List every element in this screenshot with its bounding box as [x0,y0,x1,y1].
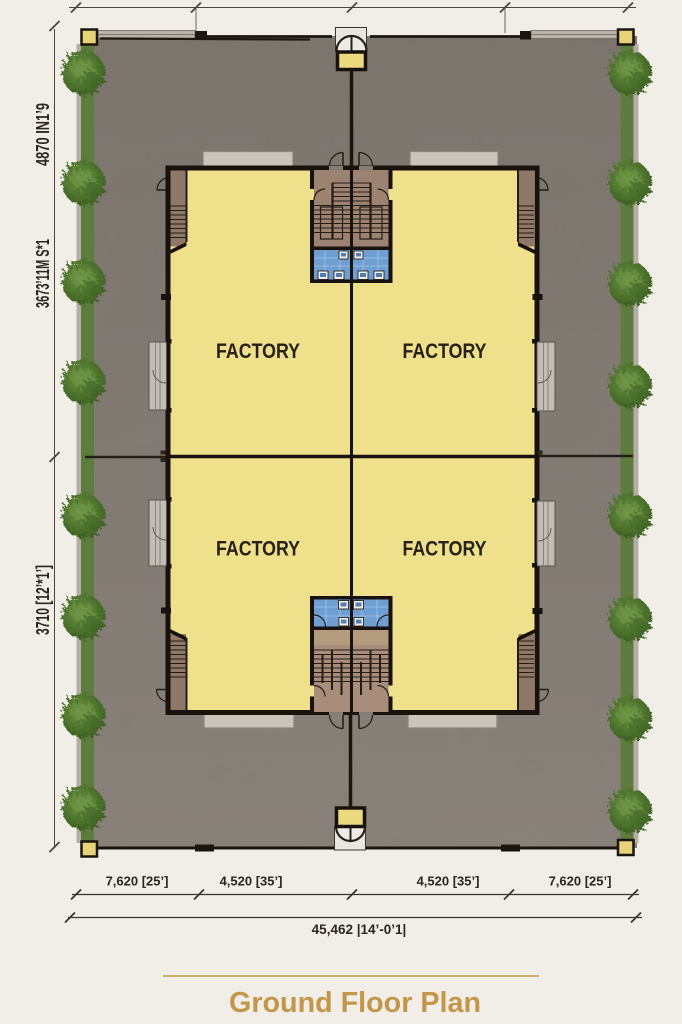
svg-text:3673’11M S*1: 3673’11M S*1 [32,239,53,308]
svg-text:4,520 [35’]: 4,520 [35’] [220,874,283,889]
svg-text:45,462 |14’-0’1|: 45,462 |14’-0’1| [312,922,407,937]
svg-text:7,620 [25’]: 7,620 [25’] [106,874,169,889]
svg-text:7,620 [25’]: 7,620 [25’] [549,874,612,889]
svg-text:FACTORY: FACTORY [216,339,300,363]
svg-text:FACTORY: FACTORY [403,537,487,561]
svg-text:FACTORY: FACTORY [403,339,487,363]
svg-text:4,520 [35’]: 4,520 [35’] [417,874,480,889]
svg-text:4870 IN1’9: 4870 IN1’9 [32,103,53,166]
svg-text:3710 [12’*1’]: 3710 [12’*1’] [32,565,53,635]
svg-text:Ground Floor Plan: Ground Floor Plan [229,987,481,1019]
svg-text:FACTORY: FACTORY [216,537,300,561]
